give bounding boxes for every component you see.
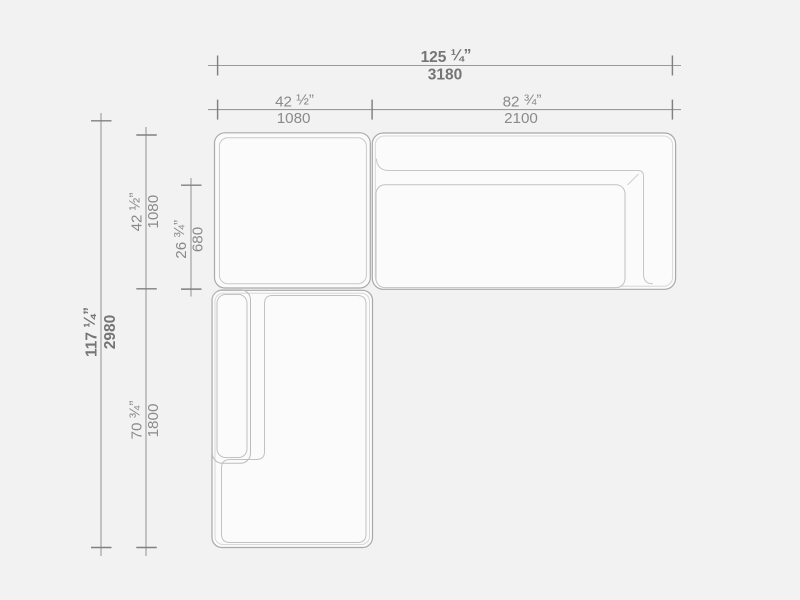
svg-text:1800: 1800 [145, 404, 162, 438]
svg-text:125 ¼”: 125 ¼” [421, 47, 472, 66]
svg-text:26 ¾”: 26 ¾” [171, 220, 190, 259]
svg-text:117 ¼”: 117 ¼” [82, 307, 101, 357]
svg-text:2980: 2980 [102, 315, 119, 349]
svg-text:42 ½”: 42 ½” [127, 193, 146, 232]
svg-text:2100: 2100 [504, 110, 538, 127]
svg-text:82 ¾”: 82 ¾” [503, 92, 542, 111]
svg-text:1080: 1080 [277, 110, 311, 127]
svg-text:42 ½”: 42 ½” [275, 92, 314, 111]
svg-text:3180: 3180 [428, 67, 462, 84]
svg-text:1080: 1080 [145, 195, 162, 229]
svg-text:680: 680 [190, 227, 207, 252]
svg-text:70 ¾”: 70 ¾” [127, 401, 146, 440]
